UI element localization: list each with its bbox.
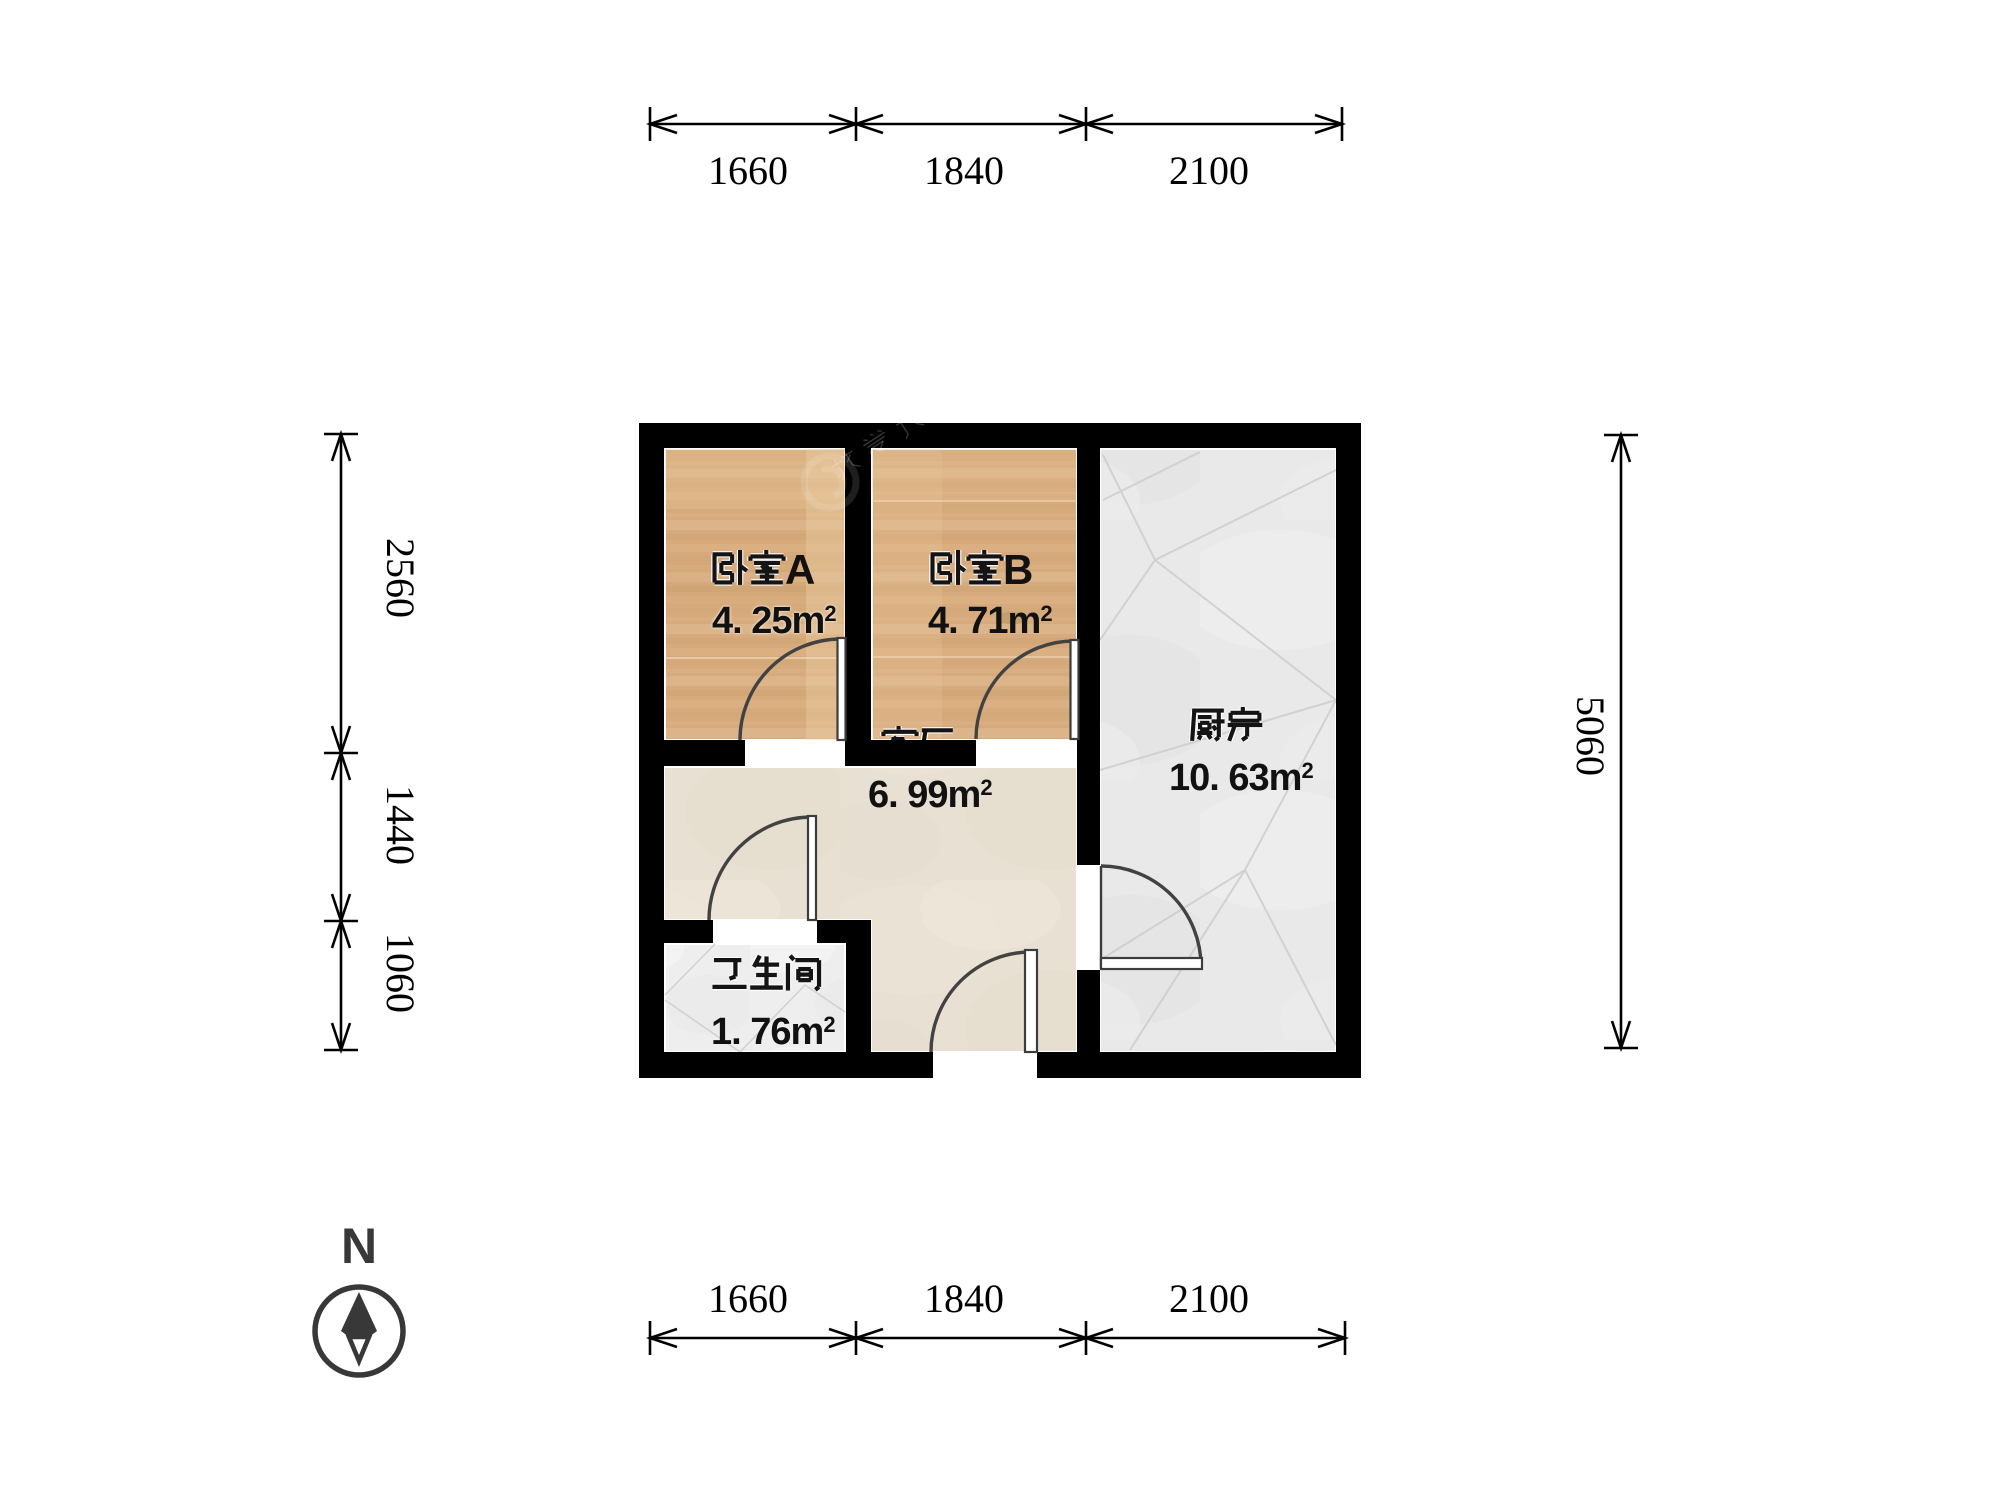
svg-text:B: B [1003,546,1032,593]
svg-text:1840: 1840 [924,1276,1004,1321]
svg-text:1060: 1060 [378,933,423,1013]
svg-text:N: N [341,1218,377,1274]
svg-text:1660: 1660 [708,1276,788,1321]
svg-text:6. 99m2: 6. 99m2 [868,774,992,816]
svg-text:2100: 2100 [1169,148,1249,193]
svg-text:4. 25m2: 4. 25m2 [712,600,836,642]
svg-text:1440: 1440 [378,785,423,865]
svg-text:5060: 5060 [1568,696,1613,776]
svg-text:2100: 2100 [1169,1276,1249,1321]
svg-text:1840: 1840 [924,148,1004,193]
svg-text:4. 71m2: 4. 71m2 [928,600,1052,642]
svg-text:2560: 2560 [378,538,423,618]
svg-text:1660: 1660 [708,148,788,193]
svg-text:A: A [785,546,815,593]
svg-text:10. 63m2: 10. 63m2 [1169,757,1313,799]
svg-text:1. 76m2: 1. 76m2 [711,1011,835,1053]
